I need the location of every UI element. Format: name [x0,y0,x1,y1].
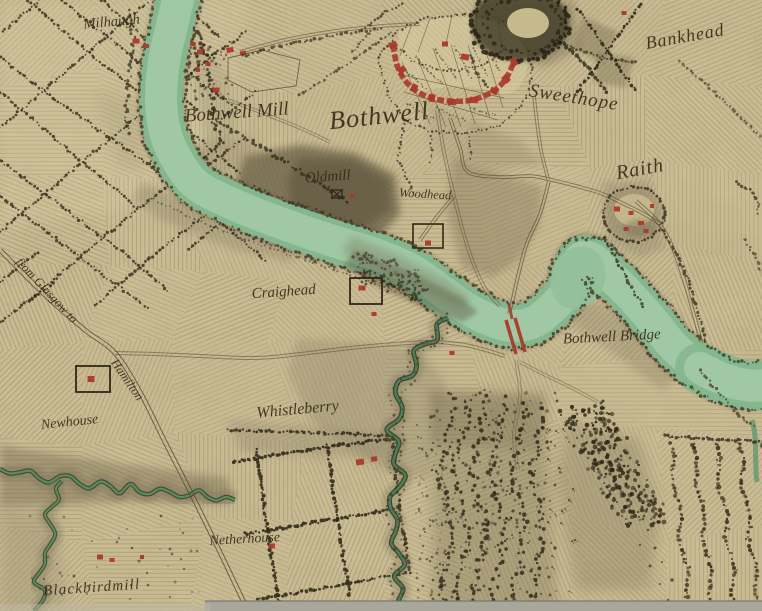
svg-text:Woodhead: Woodhead [399,186,453,203]
svg-text:Oldmill: Oldmill [304,167,351,186]
